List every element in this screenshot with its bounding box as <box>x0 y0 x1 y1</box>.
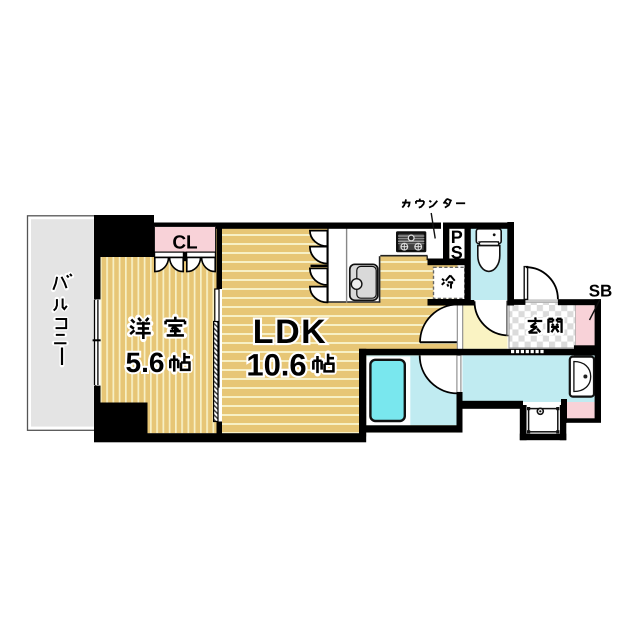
svg-text:5.6: 5.6 <box>126 347 165 378</box>
svg-text:10.6: 10.6 <box>246 347 306 382</box>
svg-text:SB: SB <box>589 282 613 301</box>
svg-text:LDK: LDK <box>253 313 327 351</box>
svg-text:CL: CL <box>172 233 198 254</box>
